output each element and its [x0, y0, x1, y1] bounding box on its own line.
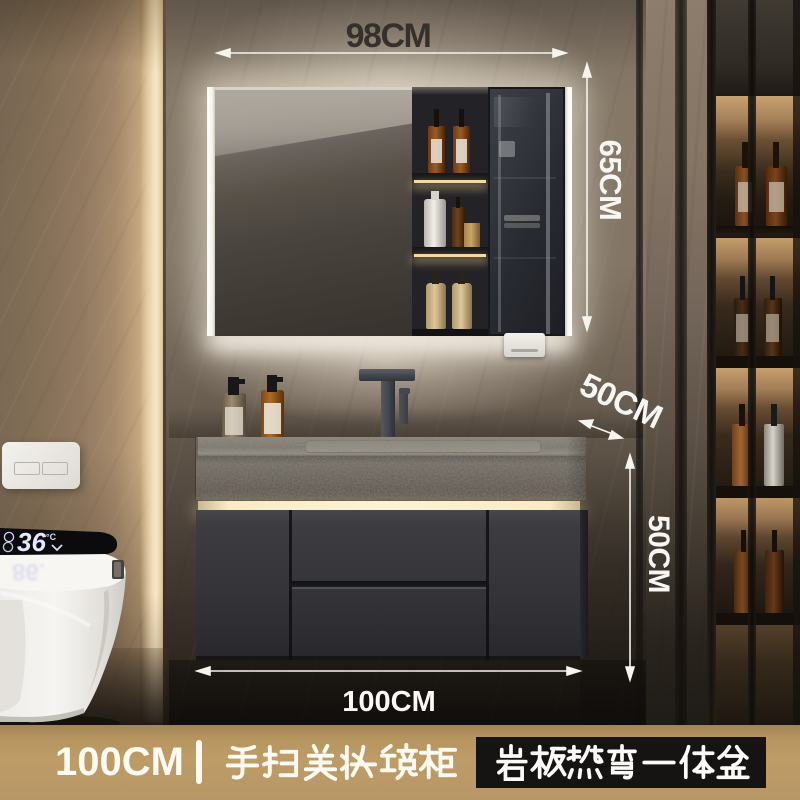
- svg-text:98CM: 98CM: [346, 17, 431, 55]
- svg-text:100CM: 100CM: [342, 686, 436, 718]
- svg-text:50CM: 50CM: [642, 515, 675, 593]
- svg-text:65CM: 65CM: [593, 140, 628, 221]
